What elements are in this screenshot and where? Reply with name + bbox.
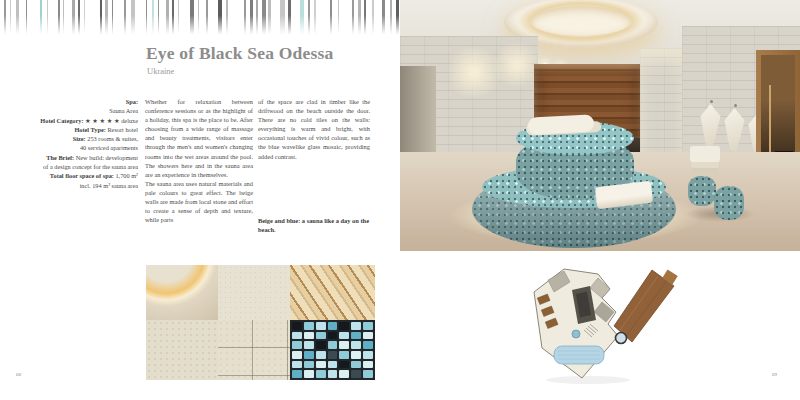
door-handle [769,85,771,155]
page-number-right: 69 [772,372,777,377]
collage-ceiling-ring-light [146,265,218,320]
fact-list: Spa:Sauna AreaHotel Category: ★ ★ ★ ★ ★ … [0,97,138,190]
book-spread: Eye of Black Sea Odessa Ukraine Spa:Saun… [0,0,800,400]
left-page: Eye of Black Sea Odessa Ukraine Spa:Saun… [0,0,400,400]
mosaic-stool [688,176,716,206]
mosaic-stool [714,186,744,220]
article-title: Eye of Black Sea Odessa [146,44,333,63]
paragraph: The sauna area uses natural materials an… [145,179,253,224]
paragraph: of the space are clad in timber like the… [258,97,370,161]
material-collage [146,265,375,380]
body-column-2: of the space are clad in timber like the… [258,97,370,234]
spa-photo [400,0,800,251]
glass-mosaic-grid [290,320,375,380]
towel-stack [690,146,720,162]
collage-beige-stone [218,265,290,320]
collage-stone-tiles [218,320,290,380]
photo-caption: Beige and blue: a sauna like a day on th… [258,216,370,234]
plan-round-lounger [572,330,580,338]
plan-jacuzzi [616,333,627,344]
ceiling-light-inner [530,6,632,36]
collage-beige-stone-rough [146,320,218,380]
folded-towels [528,114,595,134]
body-column-1: Whether for relaxation between conferenc… [145,97,253,224]
barcode-decor-strip [0,0,400,34]
collage-blue-glass-mosaic [290,320,375,380]
hanging-towel [698,104,723,148]
towel-peg [710,100,713,103]
plan-wood-wing [614,270,674,342]
paragraph: Whether for relaxation between conferenc… [145,97,253,179]
article-subtitle: Ukraine [147,66,174,76]
hanging-towel [722,108,747,152]
collage-wood-slats [290,265,375,320]
page-number-left: 68 [16,372,21,377]
towel-peg [734,104,737,107]
floor-plan [518,262,692,388]
